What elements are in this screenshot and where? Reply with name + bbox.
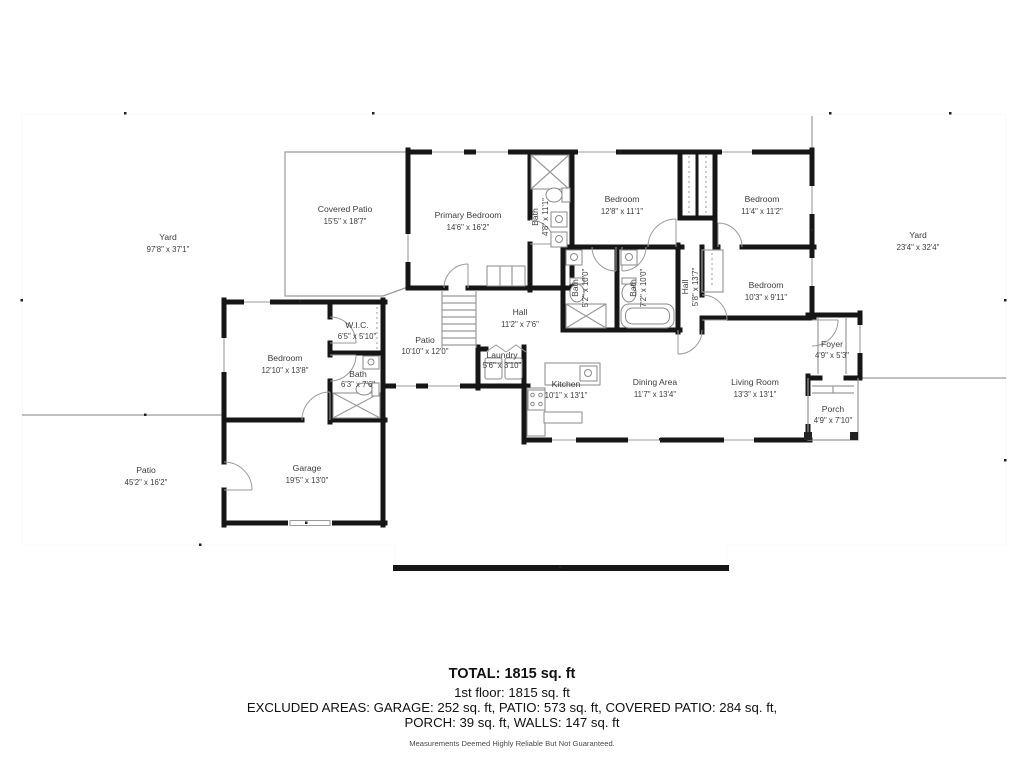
svg-text:Bath: Bath xyxy=(570,279,580,297)
room-dims-living: 13'3" x 13'1" xyxy=(734,390,777,399)
room-label-patio-large: Patio xyxy=(136,465,156,475)
room-dims-bedroom-1210: 12'10" x 13'8" xyxy=(261,366,308,375)
room-dims-laundry: 5'6" x 3'10" xyxy=(483,361,522,370)
room-label-laundry: Laundry xyxy=(486,350,518,360)
porch-post xyxy=(804,432,812,440)
sink-icon xyxy=(551,212,567,227)
room-label-covered-patio: Covered Patio xyxy=(318,204,373,214)
stairs-icon xyxy=(442,290,476,348)
window xyxy=(396,383,416,390)
room-label-bedroom-1210: Bedroom xyxy=(268,353,303,363)
excluded-areas-line2: PORCH: 39 sq. ft, WALLS: 147 sq. ft xyxy=(0,715,1024,730)
room-label-garage: Garage xyxy=(293,463,322,473)
door-arc xyxy=(302,392,330,420)
room-label-wic: W.I.C. xyxy=(345,320,368,330)
svg-text:4'8" x 11'1": 4'8" x 11'1" xyxy=(541,198,550,236)
room-dims-bedroom-114: 11'4" x 11'2" xyxy=(741,207,783,216)
window xyxy=(724,437,754,444)
svg-text:Bath: Bath xyxy=(628,279,638,297)
room-labels: Yard 97'8" x 37'1" Covered Patio 15'5" x… xyxy=(125,194,940,487)
svg-text:5'2" x 10'0": 5'2" x 10'0" xyxy=(581,269,590,308)
room-dims-dining: 11'7" x 13'4" xyxy=(634,390,676,399)
room-dims-primary-bedroom: 14'6" x 16'2" xyxy=(447,223,490,232)
door-arc xyxy=(444,264,468,288)
room-label-porch: Porch xyxy=(822,404,845,414)
closet-box xyxy=(702,250,723,292)
room-dims-bedroom-103: 10'3" x 9'11" xyxy=(745,293,787,302)
room-dims-kitchen: 10'1" x 13'1" xyxy=(545,391,588,400)
room-dims-yard-left: 97'8" x 37'1" xyxy=(147,245,190,254)
room-dims-patio-large: 45'2" x 16'2" xyxy=(125,478,168,487)
door-arc xyxy=(718,223,742,247)
room-dims-porch: 4'9" x 7'10" xyxy=(814,416,853,425)
room-dims-bedroom-128: 12'8" x 11'1" xyxy=(601,207,643,216)
door-arc xyxy=(592,247,616,271)
svg-text:Bath: Bath xyxy=(530,208,540,226)
room-dims-garage: 19'5" x 13'0" xyxy=(286,476,329,485)
room-label-living: Living Room xyxy=(731,377,779,387)
shower-icon xyxy=(531,155,569,189)
room-label-bedroom-103: Bedroom xyxy=(749,280,784,290)
room-label-hall-112: Hall xyxy=(513,307,528,317)
room-label-hall-58: Hall 5'8" x 13'7" xyxy=(680,268,700,307)
window xyxy=(857,325,864,353)
room-label-foyer: Foyer xyxy=(821,339,843,349)
room-dims-foyer: 4'9" x 5'3" xyxy=(815,351,849,360)
floor-plan-drawing: Yard 97'8" x 37'1" Covered Patio 15'5" x… xyxy=(0,0,1024,640)
room-dims-yard-right: 23'4" x 32'4" xyxy=(897,243,940,252)
window xyxy=(578,149,616,156)
sink-icon xyxy=(566,250,582,265)
window xyxy=(221,338,228,372)
floor-plan-page: Yard 97'8" x 37'1" Covered Patio 15'5" x… xyxy=(0,0,1024,768)
area-summary: TOTAL: 1815 sq. ft 1st floor: 1815 sq. f… xyxy=(0,666,1024,748)
room-label-yard-left: Yard xyxy=(159,232,177,242)
total-area-text: TOTAL: 1815 sq. ft xyxy=(0,666,1024,682)
sink-icon xyxy=(363,356,379,369)
room-label-bath-primary: Bath 4'8" x 11'1" xyxy=(530,198,550,236)
disclaimer-text: Measurements Deemed Highly Reliable But … xyxy=(0,739,1024,748)
window xyxy=(722,149,752,156)
shower-icon xyxy=(333,393,380,418)
window xyxy=(244,299,270,306)
wardrobe-icon xyxy=(487,266,525,286)
garage-door xyxy=(288,518,332,527)
porch-post xyxy=(850,432,858,440)
svg-text:7'2" x 10'0": 7'2" x 10'0" xyxy=(639,269,648,308)
room-dims-hall-112: 11'2" x 7'6" xyxy=(501,320,539,329)
window xyxy=(432,149,464,156)
sink-icon xyxy=(551,232,567,247)
room-label-patio-small: Patio xyxy=(415,335,435,345)
room-label-bedroom-114: Bedroom xyxy=(745,194,780,204)
sink-icon xyxy=(621,250,637,265)
window xyxy=(476,149,508,156)
window xyxy=(809,258,816,286)
room-label-bedroom-128: Bedroom xyxy=(605,194,640,204)
window xyxy=(552,437,576,444)
room-dims-covered-patio: 15'5" x 18'7" xyxy=(324,217,367,226)
first-floor-area-text: 1st floor: 1815 sq. ft xyxy=(0,685,1024,700)
kitchen-sink-icon xyxy=(580,366,597,381)
room-label-primary-bedroom: Primary Bedroom xyxy=(435,210,502,220)
room-label-bath-63: Bath xyxy=(349,369,367,379)
window xyxy=(405,234,412,262)
window xyxy=(628,437,660,444)
door-arc xyxy=(648,219,676,247)
excluded-areas-line1: EXCLUDED AREAS: GARAGE: 252 sq. ft, PATI… xyxy=(0,700,1024,715)
room-label-yard-right: Yard xyxy=(909,230,927,240)
svg-text:5'8" x 13'7": 5'8" x 13'7" xyxy=(691,268,700,307)
window xyxy=(809,186,816,214)
door-arc xyxy=(678,330,702,354)
window xyxy=(428,383,460,390)
svg-text:Hall: Hall xyxy=(680,280,690,295)
room-label-dining: Dining Area xyxy=(633,377,678,387)
door-arc xyxy=(224,462,252,490)
room-dims-bath-63: 6'3" x 7'6" xyxy=(341,380,375,389)
room-label-kitchen: Kitchen xyxy=(552,379,581,389)
stove-icon xyxy=(528,390,545,410)
room-dims-wic: 6'5" x 5'10" xyxy=(338,332,377,341)
room-dims-patio-small: 10'10" x 12'0" xyxy=(401,347,448,356)
